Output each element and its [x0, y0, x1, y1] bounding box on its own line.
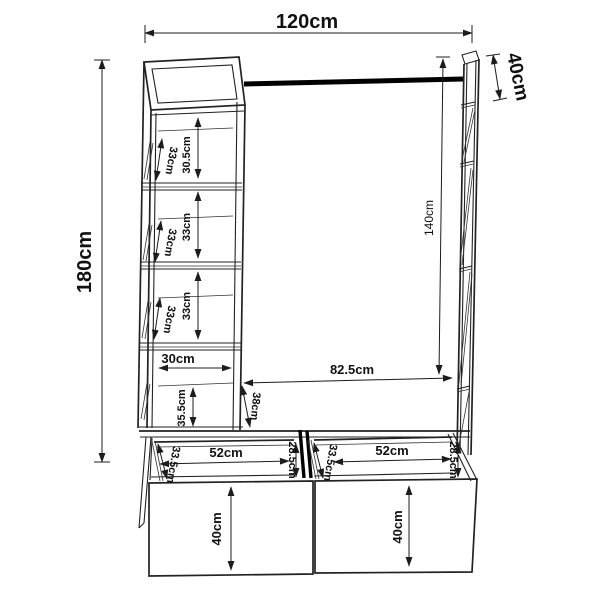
dim-label-drawer-right-width: 52cm: [375, 443, 408, 458]
dim-label-drawer-right-opening: 28.5cm: [447, 441, 459, 479]
dim-label-overall-width: 120cm: [276, 11, 338, 33]
dim-label-comp1-height: 30.5cm: [181, 136, 193, 174]
dim-label-comp4-height: 35.5cm: [176, 389, 188, 427]
dim-label-comp2-height: 33cm: [181, 213, 193, 241]
dim-label-rod-height: 140cm: [422, 200, 436, 236]
dim-label-drawer-right-front: 40cm: [390, 510, 405, 543]
dim-label-shelf-width: 30cm: [161, 351, 194, 366]
dimension-diagram: 120cm 40cm 180cm 140cm 33cm 30.5cm 33cm …: [0, 0, 600, 600]
dim-label-drawer-left-opening: 28.5cm: [286, 441, 298, 479]
dim-label-drawer-left-front: 40cm: [209, 512, 224, 545]
dim-label-overall-height: 180cm: [74, 231, 96, 293]
dim-label-bench-depth: 38cm: [248, 392, 262, 421]
dim-label-bench-width: 82.5cm: [330, 362, 374, 377]
dim-label-drawer-left-width: 52cm: [209, 445, 242, 460]
dim-label-comp3-height: 33cm: [181, 292, 193, 320]
wardrobe-drawing-svg: 120cm 40cm 180cm 140cm 33cm 30.5cm 33cm …: [0, 0, 600, 600]
